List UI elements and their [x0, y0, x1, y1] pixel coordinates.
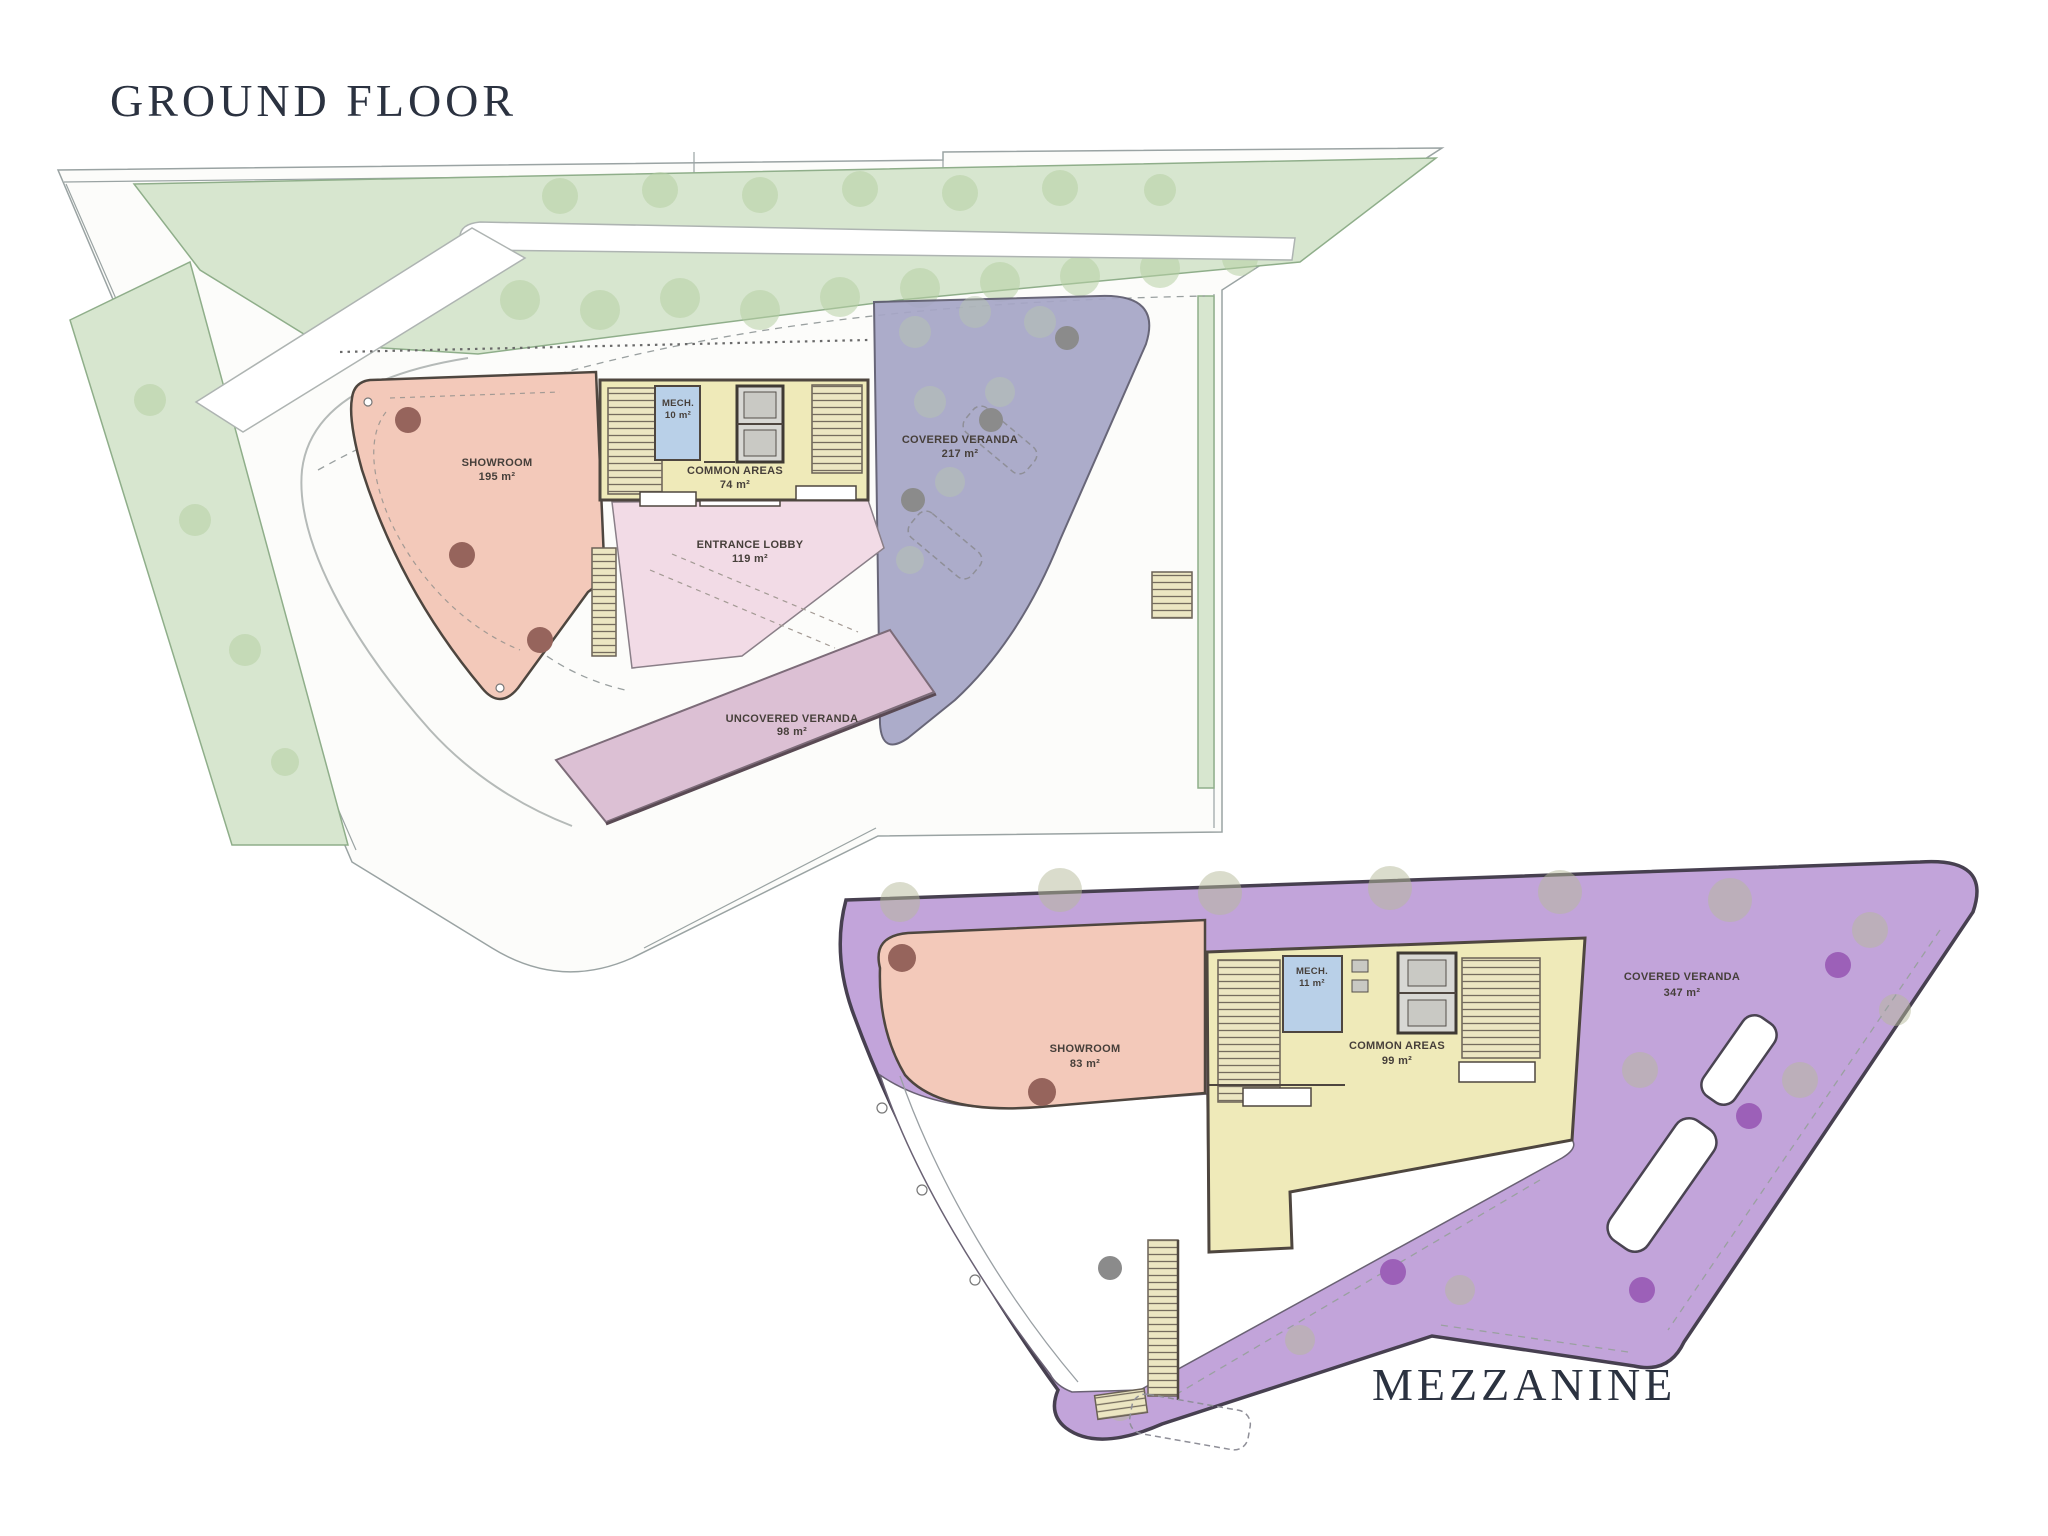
entrance-lobby-area: 119 m²	[732, 553, 768, 565]
ground-covered-veranda-label: COVERED VERANDA	[902, 434, 1018, 446]
ground-mech-label: MECH.	[662, 398, 694, 409]
entrance-lobby-label: ENTRANCE LOBBY	[697, 539, 804, 551]
ground-showroom-area: 195 m²	[479, 471, 516, 483]
mezzanine-plan: SHOWROOM 83 m² MECH. 11 m² COMMON AREAS …	[840, 862, 1977, 1453]
uncovered-veranda-label: UNCOVERED VERANDA	[726, 713, 859, 725]
green-strip-right	[1198, 296, 1214, 788]
mezzanine-title: MEZZANINE	[1372, 1359, 1676, 1410]
mezz-common-area: 99 m²	[1382, 1055, 1412, 1067]
uncovered-veranda-area: 98 m²	[777, 726, 807, 738]
ground-covered-veranda-area: 217 m²	[942, 448, 979, 460]
ground-floor-title: GROUND FLOOR	[110, 75, 517, 126]
mezz-mech-label: MECH.	[1296, 966, 1328, 977]
mezz-mech-area: 11 m²	[1299, 978, 1325, 989]
mezz-common-label: COMMON AREAS	[1349, 1040, 1445, 1052]
site-stairs	[1152, 572, 1192, 618]
ground-common-label: COMMON AREAS	[687, 465, 783, 477]
floor-plans-page: COVERED VERANDA 217 m² UNCOVERED VERANDA…	[0, 0, 2048, 1536]
mezz-showroom-area: 83 m²	[1070, 1058, 1100, 1070]
mezzanine-showroom: SHOWROOM 83 m²	[879, 920, 1205, 1108]
ground-common-area: 74 m²	[720, 479, 750, 491]
ground-common-block: MECH. 10 m² COMMON AREAS 74 m²	[600, 380, 868, 506]
plans-drawing: COVERED VERANDA 217 m² UNCOVERED VERANDA…	[0, 0, 2048, 1536]
ground-showroom-label: SHOWROOM	[462, 457, 533, 469]
mezz-covered-veranda-label: COVERED VERANDA	[1624, 971, 1740, 983]
mezz-showroom-label: SHOWROOM	[1050, 1043, 1121, 1055]
mezz-covered-veranda-area: 347 m²	[1664, 987, 1701, 999]
ground-floor-plan: COVERED VERANDA 217 m² UNCOVERED VERANDA…	[58, 75, 1442, 972]
ground-mech-area: 10 m²	[665, 410, 691, 421]
